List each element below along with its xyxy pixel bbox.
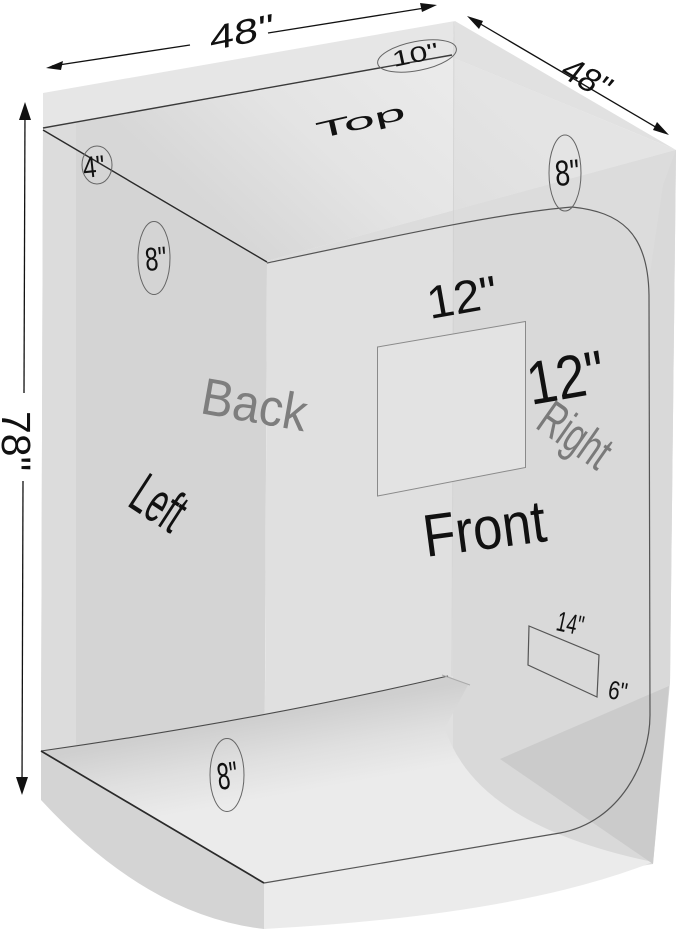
svg-text:8": 8"	[553, 151, 581, 194]
svg-text:8": 8"	[143, 241, 168, 279]
svg-text:12": 12"	[522, 338, 611, 419]
svg-text:4": 4"	[81, 148, 106, 184]
svg-text:78": 78"	[0, 411, 39, 471]
